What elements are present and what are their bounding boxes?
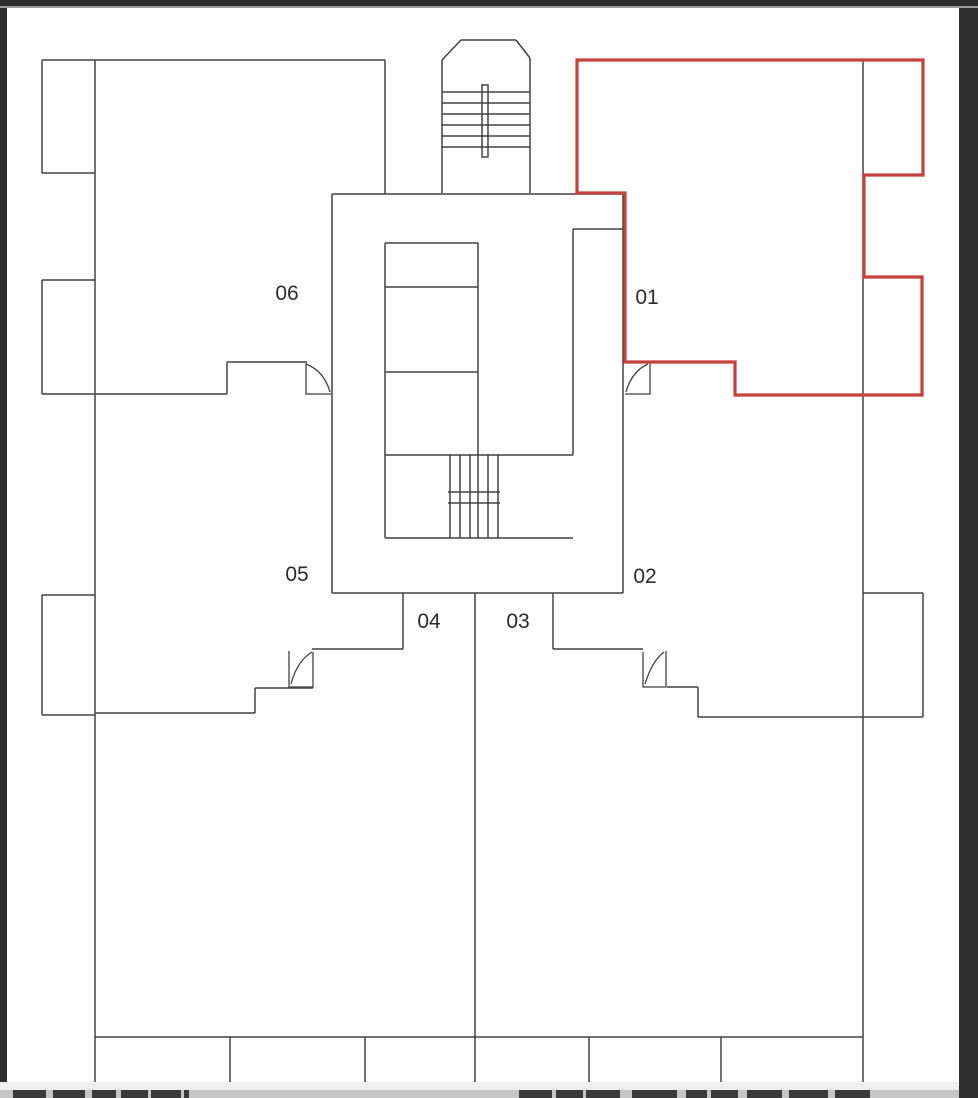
caption-glyph-fragment (747, 1090, 782, 1098)
caption-glyph-fragment (556, 1090, 583, 1098)
caption-glyph-fragment (835, 1090, 870, 1098)
unit-label-02: 02 (633, 565, 656, 588)
unit-label-06: 06 (275, 282, 298, 305)
unit-label-04: 04 (417, 610, 441, 633)
floorplan-viewer: { "window": { "frame_color": "#2e2e2e", … (0, 0, 978, 1098)
floorplan-svg: 010203040506 (0, 0, 978, 1098)
caption-glyph-fragment (686, 1090, 707, 1098)
unit-label-03: 03 (506, 610, 529, 633)
caption-glyph-fragment (13, 1090, 46, 1098)
caption-glyph-fragment (586, 1090, 620, 1098)
caption-glyph-fragment (151, 1090, 181, 1098)
caption-glyph-fragment (53, 1090, 85, 1098)
caption-glyph-fragment (711, 1090, 738, 1098)
page-background (0, 0, 978, 1098)
caption-glyph-fragment (789, 1090, 828, 1098)
unit-label-05: 05 (285, 563, 308, 586)
caption-glyph-fragment (121, 1090, 148, 1098)
caption-glyph-fragment (519, 1090, 552, 1098)
frame-left-bar (0, 8, 7, 1082)
caption-glyph-fragment (184, 1090, 189, 1098)
caption-glyph-fragment (92, 1090, 116, 1098)
frame-right-bar (959, 8, 978, 1098)
frame-top-accent (0, 6, 978, 8)
unit-label-01: 01 (635, 286, 658, 309)
caption-glyph-fragment (632, 1090, 677, 1098)
frame-top-bar (0, 0, 978, 6)
bottom-strip (0, 1082, 959, 1090)
